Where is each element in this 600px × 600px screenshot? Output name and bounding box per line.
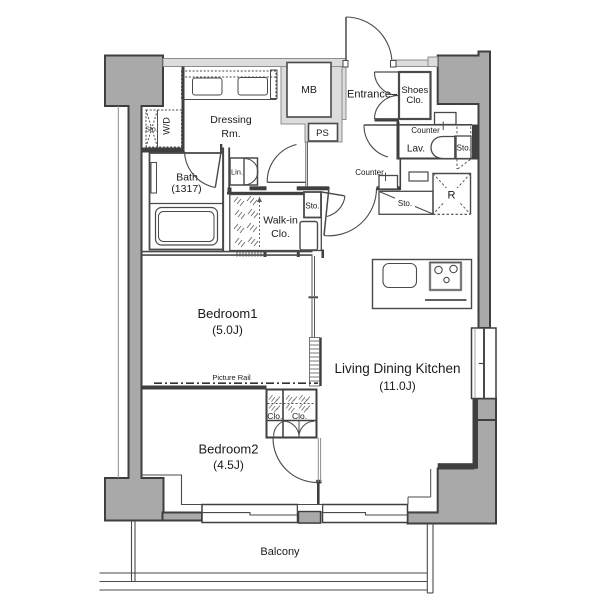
svg-text:Picture Rail: Picture Rail [212, 373, 251, 382]
svg-text:Dressing: Dressing [210, 114, 252, 126]
svg-text:R: R [448, 190, 456, 202]
svg-text:Rm.: Rm. [221, 128, 240, 140]
svg-text:Clo.: Clo. [292, 411, 307, 421]
svg-text:(1317): (1317) [171, 183, 201, 195]
svg-text:Clo.: Clo. [267, 411, 282, 421]
svg-text:MB: MB [301, 84, 317, 96]
svg-text:Sto.: Sto. [398, 199, 412, 208]
svg-text:Bath: Bath [176, 172, 198, 184]
svg-text:Counter: Counter [355, 168, 384, 177]
svg-text:Walk-in: Walk-in [263, 215, 298, 227]
svg-text:Clo.: Clo. [406, 95, 423, 106]
svg-text:W/D: W/D [162, 117, 172, 135]
svg-text:Living Dining Kitchen: Living Dining Kitchen [334, 361, 460, 376]
svg-text:Balcony: Balcony [260, 546, 300, 558]
svg-text:(4.5J): (4.5J) [213, 458, 244, 472]
svg-text:(11.0J): (11.0J) [379, 379, 415, 393]
svg-text:Counter: Counter [411, 126, 440, 135]
svg-text:Sto.: Sto. [305, 202, 319, 211]
svg-text:Lin.: Lin. [231, 168, 243, 177]
svg-text:Lav.: Lav. [407, 144, 425, 155]
svg-text:(5.0J): (5.0J) [212, 323, 243, 337]
svg-text:Clo.: Clo. [271, 228, 290, 240]
svg-text:PS: PS [316, 128, 329, 139]
svg-text:Sto.: Sto. [145, 127, 158, 134]
svg-text:Bedroom1: Bedroom1 [198, 306, 258, 321]
svg-text:Bedroom2: Bedroom2 [199, 442, 259, 457]
svg-text:Sto.: Sto. [457, 144, 471, 153]
